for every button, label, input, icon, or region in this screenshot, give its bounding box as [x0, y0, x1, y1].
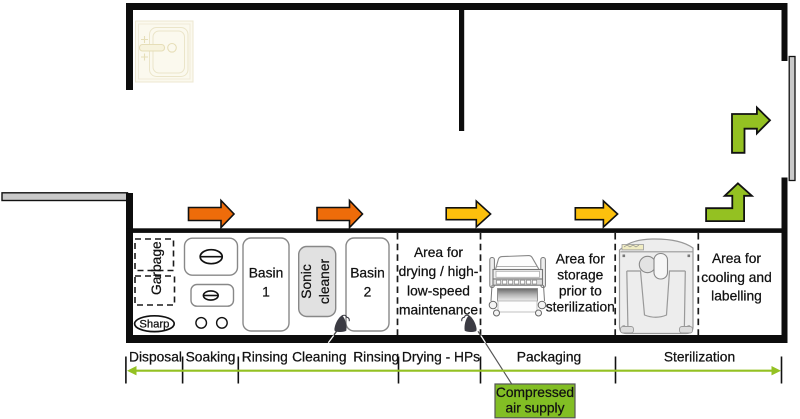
svg-text:Sharp: Sharp [139, 318, 169, 330]
svg-text:Packaging: Packaging [517, 350, 581, 365]
svg-text:Area for: Area for [414, 245, 463, 260]
svg-text:storage: storage [557, 267, 603, 282]
svg-text:Basin: Basin [249, 266, 284, 281]
svg-text:Compressed: Compressed [496, 385, 574, 400]
svg-text:prior to: prior to [559, 283, 602, 298]
svg-text:drying / high-: drying / high- [399, 264, 479, 279]
svg-text:Cleaning: Cleaning [292, 350, 346, 365]
svg-text:air supply: air supply [505, 401, 564, 416]
svg-text:sterilization: sterilization [546, 299, 615, 314]
svg-text:Area for: Area for [556, 251, 605, 266]
svg-text:Sonic: Sonic [299, 264, 314, 299]
svg-text:Sterilization: Sterilization [664, 350, 735, 365]
svg-text:Rinsing: Rinsing [242, 350, 288, 365]
svg-text:cleaner: cleaner [317, 258, 332, 304]
svg-text:1: 1 [262, 284, 270, 299]
svg-text:low-speed: low-speed [407, 283, 470, 298]
svg-text:cooling and: cooling and [701, 270, 772, 285]
svg-text:Garbage: Garbage [149, 241, 164, 295]
svg-text:Drying - HPs: Drying - HPs [402, 350, 480, 365]
svg-text:Area for: Area for [712, 251, 761, 266]
svg-text:Soaking: Soaking [186, 350, 236, 365]
svg-text:Disposal: Disposal [129, 350, 182, 365]
svg-text:labelling: labelling [711, 289, 762, 304]
svg-text:Basin: Basin [350, 266, 385, 281]
svg-text:Rinsing: Rinsing [353, 350, 399, 365]
svg-text:2: 2 [364, 284, 372, 299]
